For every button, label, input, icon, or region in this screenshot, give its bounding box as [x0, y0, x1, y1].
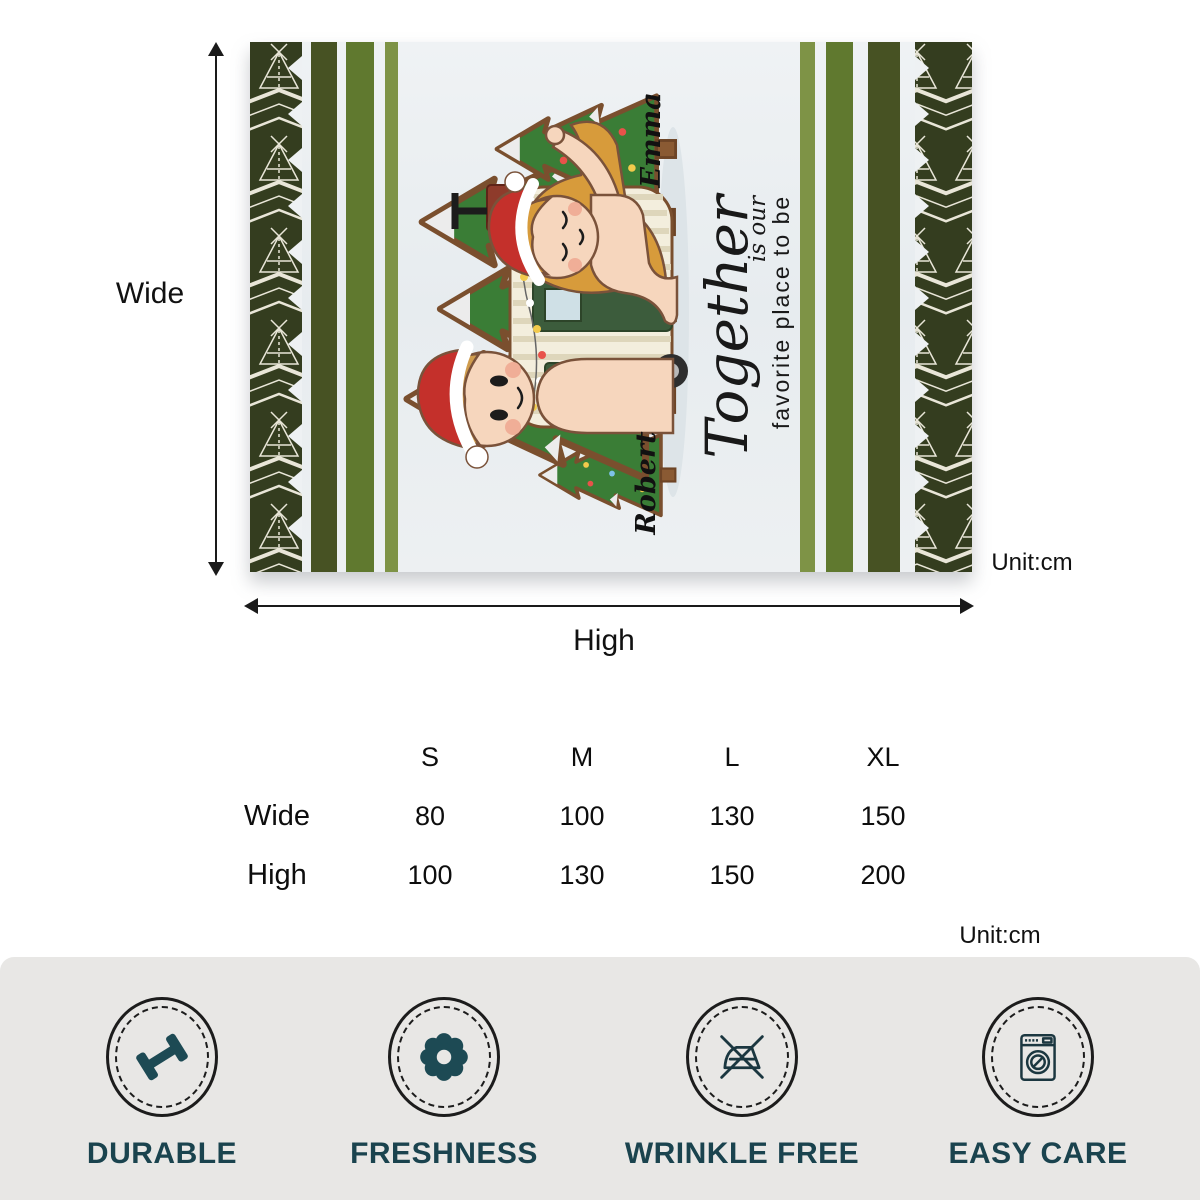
size-col-l: L	[662, 742, 802, 773]
quote-favorite-place: favorite place to be	[768, 195, 794, 429]
feature-easy-care-label: EASY CARE	[908, 1137, 1168, 1171]
size-high-m: 130	[512, 860, 652, 891]
freshness-badge	[388, 997, 500, 1117]
feature-bar: DURABLE FRESHNESS	[0, 957, 1200, 1200]
personalized-name-emma: Emma	[636, 92, 667, 188]
unit-label-table: Unit:cm	[940, 922, 1060, 950]
size-high-xl: 200	[813, 860, 953, 891]
arrowhead-left-icon	[244, 598, 258, 614]
wide-dimension-arrow	[215, 48, 217, 568]
arrowhead-down-icon	[208, 562, 224, 576]
size-row-wide-label: Wide	[207, 800, 347, 833]
size-high-s: 100	[360, 860, 500, 891]
no-iron-icon	[712, 1027, 772, 1087]
dumbbell-icon	[133, 1028, 191, 1086]
size-high-l: 150	[662, 860, 802, 891]
size-row-high-label: High	[207, 859, 347, 892]
feature-wrinkle-free-label: WRINKLE FREE	[612, 1137, 872, 1171]
feature-freshness-label: FRESHNESS	[314, 1137, 574, 1171]
easy-care-badge	[982, 997, 1094, 1117]
size-wide-s: 80	[360, 801, 500, 832]
high-dimension-label: High	[544, 624, 664, 658]
wrinkle-free-badge	[686, 997, 798, 1117]
wide-dimension-label: Wide	[100, 277, 200, 311]
feature-freshness: FRESHNESS	[314, 997, 574, 1171]
arrowhead-up-icon	[208, 42, 224, 56]
size-col-xl: XL	[813, 742, 953, 773]
feature-easy-care: EASY CARE	[908, 997, 1168, 1171]
size-wide-xl: 150	[813, 801, 953, 832]
washing-machine-icon	[1009, 1028, 1067, 1086]
product-size-chart-image: Together is our favorite place to be Emm…	[0, 0, 1200, 1200]
arrowhead-right-icon	[960, 598, 974, 614]
high-dimension-arrow	[250, 605, 968, 607]
size-wide-l: 130	[662, 801, 802, 832]
unit-label-blanket: Unit:cm	[972, 549, 1092, 577]
flower-icon	[415, 1028, 473, 1086]
personalized-name-robert: Robert	[631, 431, 662, 536]
feature-wrinkle-free: WRINKLE FREE	[612, 997, 872, 1171]
size-col-m: M	[512, 742, 652, 773]
blanket-preview: Together is our favorite place to be Emm…	[250, 42, 972, 572]
durable-badge	[106, 997, 218, 1117]
size-wide-m: 100	[512, 801, 652, 832]
blanket-quote: Together is our favorite place to be	[693, 192, 794, 459]
size-col-s: S	[360, 742, 500, 773]
feature-durable-label: DURABLE	[32, 1137, 292, 1171]
feature-durable: DURABLE	[32, 997, 292, 1171]
